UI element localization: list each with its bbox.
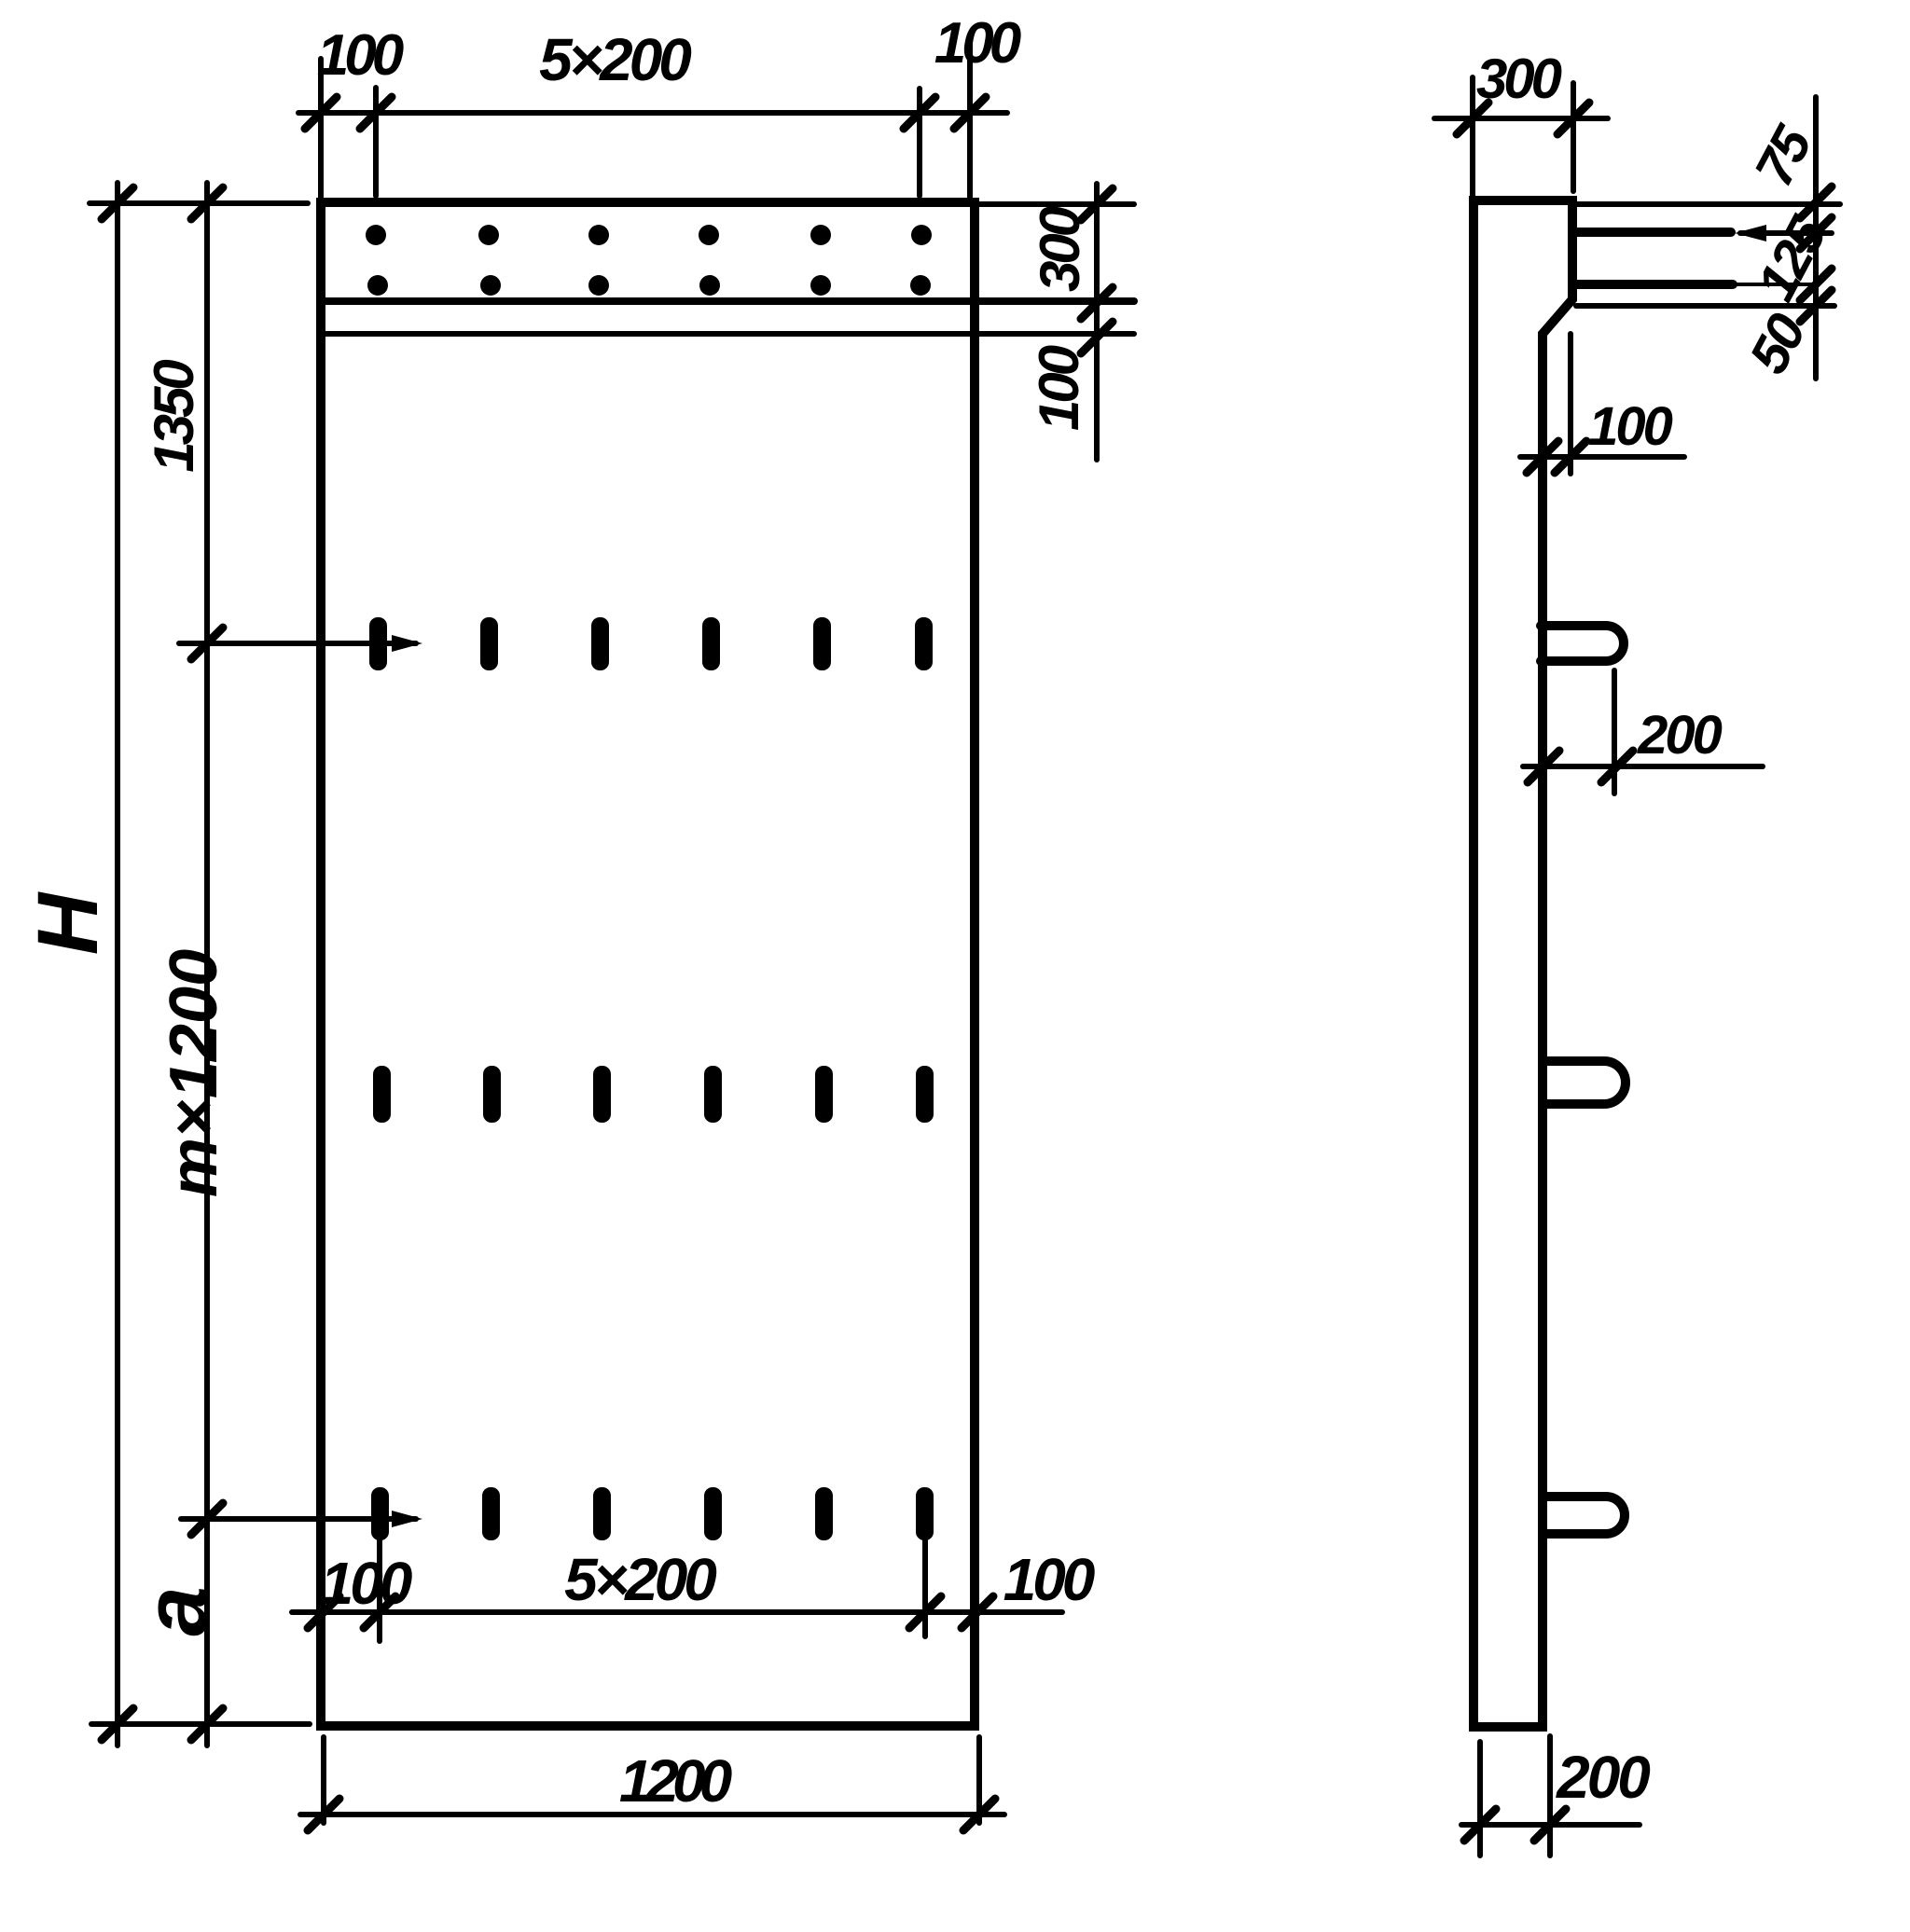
svg-text:100: 100	[1028, 345, 1090, 431]
svg-text:5×200: 5×200	[539, 26, 691, 93]
svg-text:100: 100	[317, 23, 404, 88]
svg-text:200: 200	[1637, 705, 1723, 766]
svg-text:1350: 1350	[143, 360, 205, 473]
svg-text:300: 300	[1476, 48, 1562, 110]
svg-text:H: H	[21, 890, 116, 955]
svg-text:100: 100	[321, 1550, 412, 1617]
svg-text:100: 100	[1003, 1546, 1095, 1613]
svg-text:200: 200	[1556, 1744, 1650, 1811]
svg-text:100: 100	[934, 11, 1021, 76]
svg-text:5×200: 5×200	[564, 1546, 716, 1613]
svg-text:75: 75	[1743, 116, 1824, 195]
svg-text:1200: 1200	[619, 1747, 732, 1815]
svg-text:a: a	[126, 1586, 226, 1635]
svg-text:100: 100	[1588, 396, 1673, 457]
svg-text:300: 300	[1029, 206, 1091, 292]
svg-text:m×1200: m×1200	[157, 949, 231, 1197]
